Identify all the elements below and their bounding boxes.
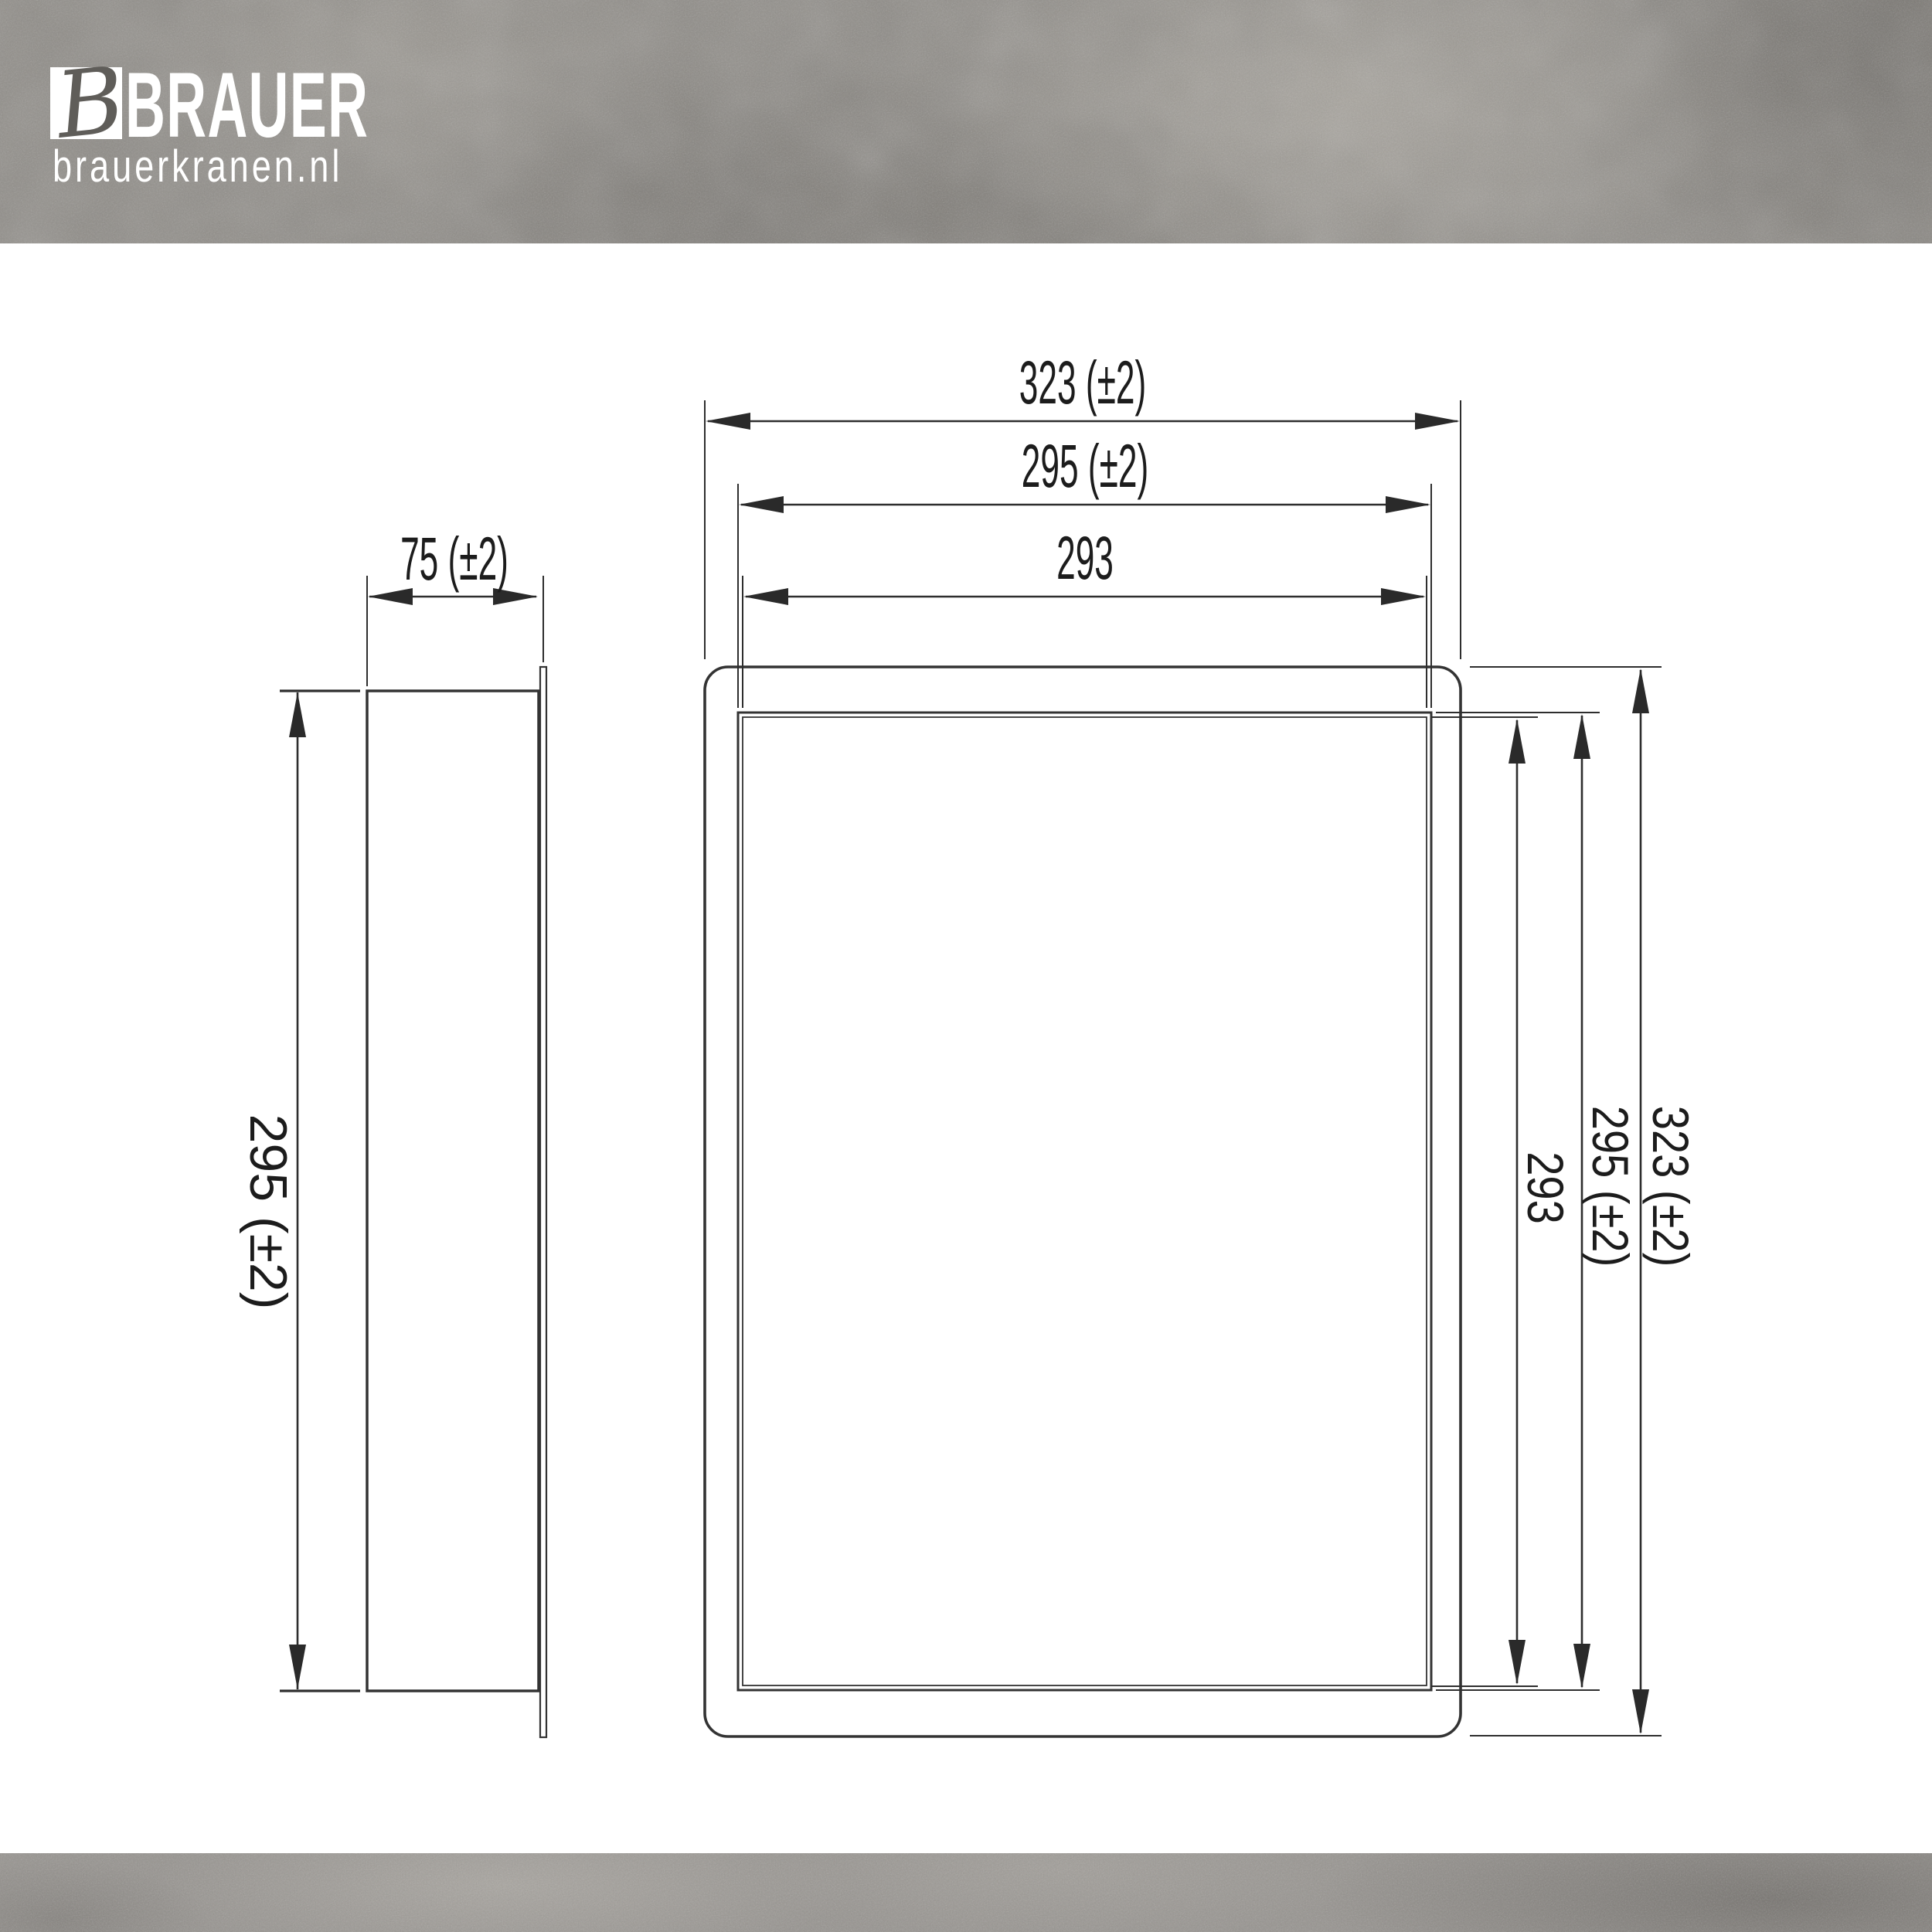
arrowhead-bottom — [1573, 1644, 1590, 1689]
dim-label-side-depth: 75 (±2) — [400, 524, 509, 593]
spec-sheet-page: B BRAUER brauerkranen.nl 75 (±2) — [0, 0, 1932, 1932]
dim-front-height-opening: 293 — [1431, 717, 1573, 1686]
dim-front-width-opening: 293 — [743, 523, 1427, 708]
dim-label-front-height-flange-inner: 295 (±2) — [1582, 1106, 1638, 1267]
arrowhead-bottom — [1632, 1689, 1649, 1734]
dim-side-height: 295 (±2) — [239, 691, 360, 1691]
arrowhead-right — [1381, 588, 1426, 605]
arrowhead-left — [739, 496, 784, 513]
arrowhead-bottom — [1509, 1640, 1526, 1685]
side-view-body — [367, 691, 539, 1691]
front-view-opening-outer — [738, 713, 1431, 1690]
dim-label-front-height-opening: 293 — [1517, 1151, 1573, 1224]
dim-side-depth: 75 (±2) — [367, 524, 543, 686]
dimension-drawing: 75 (±2) 295 (±2) 323 (±2) — [0, 0, 1932, 1932]
arrowhead-top — [1509, 719, 1526, 764]
front-view-outer-flange — [705, 667, 1461, 1736]
arrowhead-top — [1632, 668, 1649, 713]
dim-label-front-height-total: 323 (±2) — [1642, 1106, 1699, 1267]
arrowhead-top — [289, 692, 306, 737]
arrowhead-top — [1573, 714, 1590, 759]
front-view-opening-inner — [743, 717, 1427, 1685]
side-view-front-flange — [540, 667, 546, 1737]
side-view: 75 (±2) 295 (±2) — [239, 524, 546, 1737]
arrowhead-left — [706, 413, 750, 430]
arrowhead-right — [1386, 496, 1430, 513]
arrowhead-left — [743, 588, 788, 605]
dim-label-front-width-opening: 293 — [1056, 523, 1114, 592]
dim-label-front-width-flange-inner: 295 (±2) — [1022, 431, 1148, 500]
dim-label-front-width-total: 323 (±2) — [1019, 348, 1146, 417]
arrowhead-bottom — [289, 1645, 306, 1689]
arrowhead-right — [1415, 413, 1460, 430]
dim-label-side-height: 295 (±2) — [239, 1114, 298, 1310]
front-view: 323 (±2) 295 (±2) 293 — [705, 348, 1699, 1736]
extension-lines — [743, 576, 1427, 708]
